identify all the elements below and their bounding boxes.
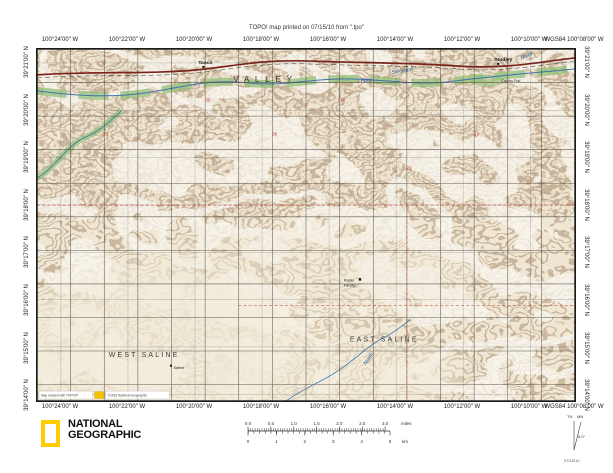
town-label-studley: Studley	[494, 57, 512, 63]
scale-miles-tick: 1.5	[313, 421, 320, 426]
lat-label-right: 39°18'00" N	[583, 189, 589, 221]
credit-created: Map created with TOPO!®	[41, 394, 79, 398]
lat-label-left: 39°19'00" N	[24, 141, 30, 173]
section-number: 22	[407, 165, 412, 170]
lat-label-left: 39°17'00" N	[24, 236, 30, 268]
town-label-tasco: Tasco	[198, 60, 212, 66]
vegetation-patch	[471, 75, 503, 87]
lat-label-left: 39°15'00" N	[24, 332, 30, 364]
water-label-fork: Fork	[361, 78, 372, 84]
lon-label-bottom: 100°22'00" W	[109, 404, 145, 410]
scale-km-tick: 2	[304, 439, 307, 444]
radio-facility-symbol	[359, 278, 361, 280]
lon-label-bottom: 100°12'00" W	[444, 404, 480, 410]
topo-map-svg: Tasco Studley VALLEY WEST SALINE EAST SA…	[37, 49, 575, 401]
scale-km-unit: km	[402, 439, 408, 444]
lat-label-right: 39°19'00" N	[583, 141, 589, 173]
declination-mn-label: MN	[577, 414, 583, 419]
scale-miles-tick: 0.5	[268, 421, 275, 426]
lon-label-bottom: 100°10'00" W	[511, 404, 547, 410]
township-label-east-saline: EAST SALINE	[350, 336, 419, 343]
scale-miles-tick: 2.0	[336, 421, 343, 426]
scale-miles-tick: 3.0	[382, 421, 389, 426]
lon-label-top: 100°14'00" W	[377, 37, 413, 43]
lat-label-right: 39°15'00" N	[583, 332, 589, 364]
declination-tn-label: TN	[567, 414, 572, 419]
scale-miles-unit: miles	[401, 421, 412, 426]
lon-label-top: 100°16'00" W	[310, 37, 346, 43]
scale-miles-tick: 0.0	[245, 421, 252, 426]
lon-label-top: 100°22'00" W	[109, 37, 145, 43]
scale-bar: 0.0 0.5 1.0 1.5 2.0 2.5 3.0 miles 0 1 2 …	[236, 417, 420, 451]
national-geographic-logo-text: NATIONAL GEOGRAPHIC	[68, 419, 141, 441]
section-number: 36	[272, 132, 277, 137]
place-label-radio-2: Facility	[344, 284, 356, 288]
lon-label-top: 100°12'00" W	[444, 37, 480, 43]
lon-label-bottom: 100°20'00" W	[176, 404, 212, 410]
section-number: 10	[474, 132, 479, 137]
lat-label-right: 39°16'00" N	[583, 284, 589, 316]
salem-symbol	[170, 365, 172, 367]
lat-label-right: 39°21'00" N	[583, 46, 589, 78]
map-canvas[interactable]: Tasco Studley VALLEY WEST SALINE EAST SA…	[36, 48, 576, 402]
credit-copyright: ©2010 National Geographic	[108, 394, 148, 398]
lat-label-left: 39°20'00" N	[24, 94, 30, 126]
studley-building-symbol	[497, 63, 499, 65]
lat-label-right: 39°20'00" N	[583, 94, 589, 126]
scale-miles-tick: 2.5	[359, 421, 366, 426]
section-number: 25	[103, 132, 108, 137]
mini-logo-yellow	[95, 392, 104, 399]
section-number: 14	[340, 98, 345, 103]
declination-date: 07/15/10	[564, 458, 580, 463]
lon-label-top: 100°18'00" W	[243, 37, 279, 43]
lat-label-right: 39°14'00" N	[583, 379, 589, 411]
declination-angle: 8.0°	[578, 434, 586, 439]
lat-label-right: 39°17'00" N	[583, 236, 589, 268]
scale-km-tick: 1	[275, 439, 278, 444]
lat-label-left: 39°21'00" N	[24, 46, 30, 78]
scale-km-tick: 5	[389, 439, 392, 444]
scale-km-major-ticks	[248, 431, 390, 436]
place-label-salem: Salem	[173, 366, 184, 370]
scale-km-tick: 0	[247, 439, 250, 444]
declination-diagram: TN MN 8.0° 07/15/10	[558, 410, 612, 468]
lon-label-top: 100°20'00" W	[176, 37, 212, 43]
lat-label-left: 39°16'00" N	[24, 284, 30, 316]
lat-label-left: 39°14'00" N	[24, 379, 30, 411]
scale-miles-tick: 1.0	[291, 421, 298, 426]
print-header: TOPO! map printed on 07/15/10 from ".tpo…	[0, 25, 613, 31]
lon-label-top-datum: WGS84 100°08'00" W	[544, 37, 603, 43]
place-label-radio-1: Radio	[344, 279, 354, 283]
scale-km-tick: 4	[360, 439, 363, 444]
lon-label-top: 100°10'00" W	[511, 37, 547, 43]
section-number: 30	[205, 98, 210, 103]
flat-area-mid	[107, 228, 486, 327]
township-label-valley: VALLEY	[233, 74, 297, 84]
logo-line-2: GEOGRAPHIC	[68, 430, 141, 441]
print-preview-page: TOPO! map printed on 07/15/10 from ".tpo…	[0, 0, 613, 473]
national-geographic-logo-icon	[41, 420, 60, 447]
scale-km-tick: 3	[332, 439, 335, 444]
lon-label-top: 100°24'00" W	[42, 37, 78, 43]
lon-label-bottom: 100°24'00" W	[42, 404, 78, 410]
lat-label-left: 39°18'00" N	[24, 189, 30, 221]
township-label-west-saline: WEST SALINE	[109, 352, 180, 359]
tasco-building-symbol	[202, 66, 204, 68]
lon-label-bottom: 100°14'00" W	[377, 404, 413, 410]
lon-label-bottom: 100°16'00" W	[310, 404, 346, 410]
place-label-cactus-flat: Cactus Flat	[501, 79, 521, 83]
lon-label-bottom: 100°18'00" W	[243, 404, 279, 410]
